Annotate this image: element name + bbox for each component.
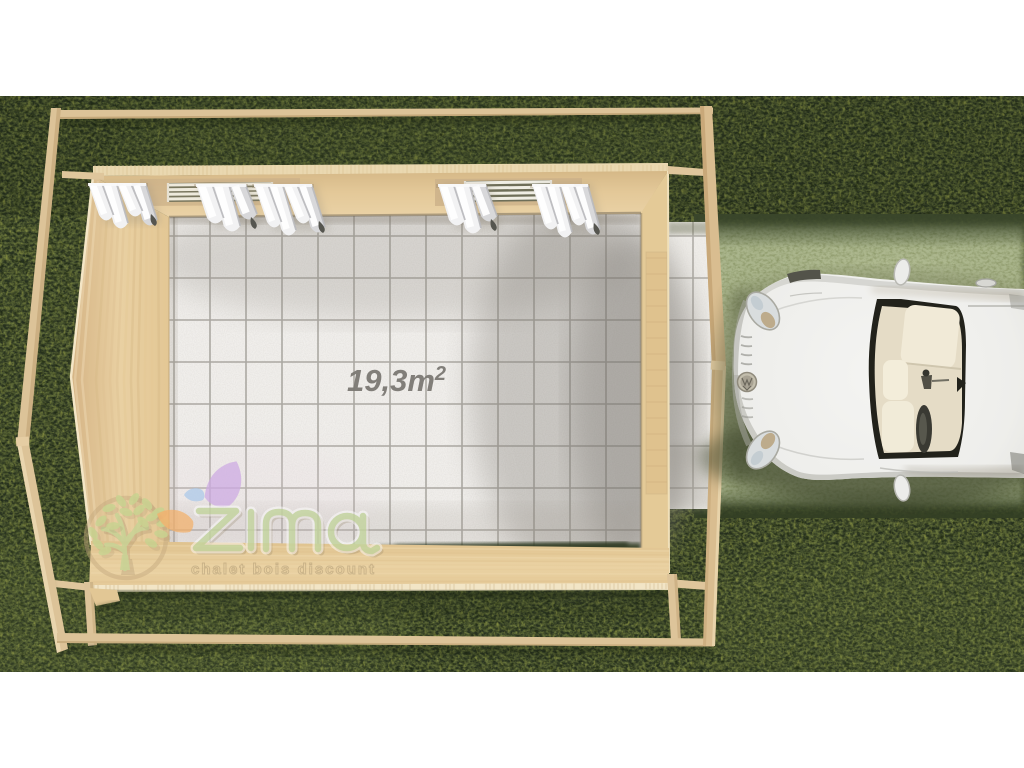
svg-text:19,3m2: 19,3m2 (347, 363, 446, 398)
svg-text:chalet bois discount: chalet bois discount (191, 561, 376, 578)
